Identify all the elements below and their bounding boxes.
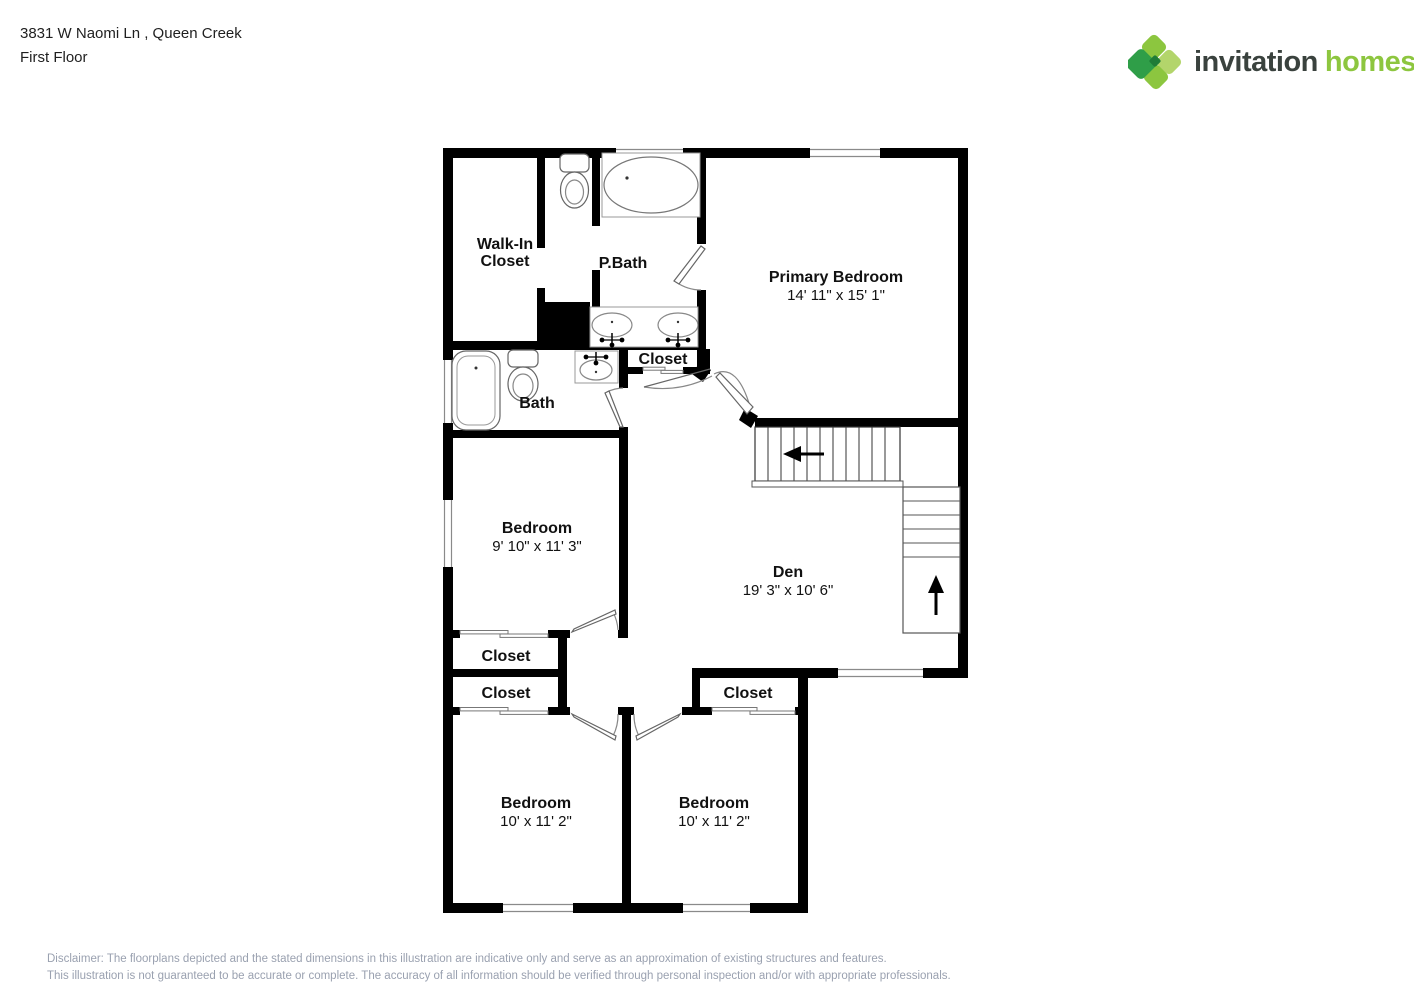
door-swing: [572, 610, 618, 632]
staircase-upper: [752, 427, 903, 487]
room-dims-primary-bedroom: 14' 11" x 15' 1": [787, 287, 885, 304]
sink-icon: [575, 351, 618, 383]
door-swing: [674, 246, 705, 290]
window: [838, 668, 923, 678]
sliding-door: [460, 631, 548, 638]
floorplan-page: 3831 W Naomi Ln , Queen Creek First Floo…: [0, 0, 1414, 1000]
disclaimer-line-2: This illustration is not guaranteed to b…: [47, 970, 951, 982]
toilet-icon: [508, 350, 538, 401]
vanity-double-sink-icon: [590, 307, 698, 347]
wall: [692, 668, 700, 715]
window: [443, 500, 453, 567]
wall: [618, 630, 628, 638]
window: [503, 903, 573, 913]
staircase-lower: [903, 487, 960, 633]
wall: [443, 669, 567, 677]
oval-bathtub-icon: [602, 153, 700, 217]
disclaimer-line-1: Disclaimer: The floorplans depicted and …: [47, 953, 887, 965]
room-dims-bedroom-br: 10' x 11' 2": [678, 813, 750, 830]
wall: [443, 630, 460, 638]
wall: [619, 350, 628, 388]
wall: [619, 427, 628, 638]
floorplan-drawing: Walk-In Closet P.Bath Primary Bedroom 14…: [0, 0, 1414, 1000]
door-swing: [634, 714, 680, 740]
room-label-bedroom-br: Bedroom: [679, 795, 749, 812]
wall: [628, 367, 643, 374]
room-label-closet-right: Closet: [724, 685, 774, 702]
stairs-landing-edge: [752, 481, 903, 487]
wall-block: [537, 302, 590, 347]
sliding-door: [460, 708, 548, 715]
wall: [798, 668, 808, 913]
bathtub-icon: [452, 351, 500, 430]
room-label-bedroom-mid: Bedroom: [502, 520, 572, 537]
wall: [700, 707, 712, 715]
wall: [443, 430, 628, 438]
wall: [795, 707, 805, 715]
wall: [622, 707, 631, 913]
room-dims-bedroom-bl: 10' x 11' 2": [500, 813, 572, 830]
room-dims-den: 19' 3" x 10' 6": [743, 582, 834, 599]
room-label-primary-bedroom: Primary Bedroom: [769, 269, 903, 286]
wall: [548, 630, 570, 638]
wall: [558, 638, 567, 715]
room-dims-bedroom-mid: 9' 10" x 11' 3": [492, 538, 582, 555]
door-swing: [714, 372, 753, 414]
room-label-walk-in-closet-line1: Walk-In: [477, 236, 533, 253]
window: [810, 148, 880, 158]
room-label-closet-2: Closet: [482, 685, 532, 702]
wall: [592, 270, 600, 308]
door-swing: [605, 388, 623, 427]
wall: [537, 148, 545, 248]
room-label-closet-1: Closet: [482, 648, 532, 665]
toilet-icon: [560, 154, 589, 208]
room-label-closet-hall: Closet: [639, 351, 689, 368]
wall: [592, 148, 600, 226]
wall: [443, 707, 460, 715]
room-label-bedroom-bl: Bedroom: [501, 795, 571, 812]
door-swing: [572, 714, 618, 740]
room-label-bath: Bath: [519, 395, 555, 412]
room-label-walk-in-closet-line2: Closet: [481, 253, 531, 270]
room-label-den: Den: [773, 564, 803, 581]
wall: [548, 707, 570, 715]
wall: [693, 668, 968, 678]
sliding-door: [643, 367, 683, 373]
sliding-door: [712, 708, 795, 715]
window: [683, 903, 750, 913]
wall: [755, 418, 968, 427]
room-label-p-bath: P.Bath: [599, 255, 648, 272]
